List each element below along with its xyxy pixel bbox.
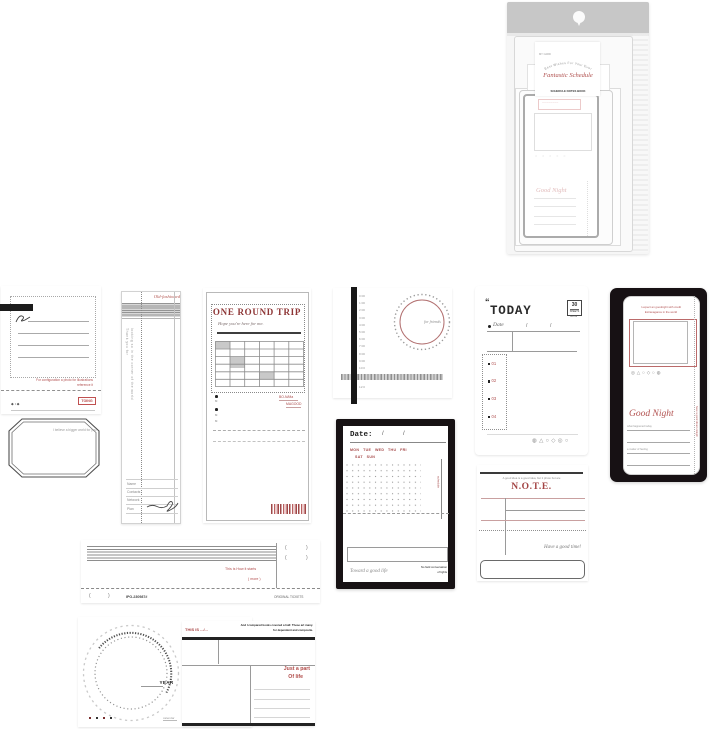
svg-text:Best Wishes For Your Every Day: Best Wishes For Your Every Day bbox=[537, 54, 593, 71]
svg-text:I believe a bigger world for y: I believe a bigger world for you bbox=[53, 428, 97, 432]
svg-text:for friends: for friends bbox=[424, 319, 441, 324]
